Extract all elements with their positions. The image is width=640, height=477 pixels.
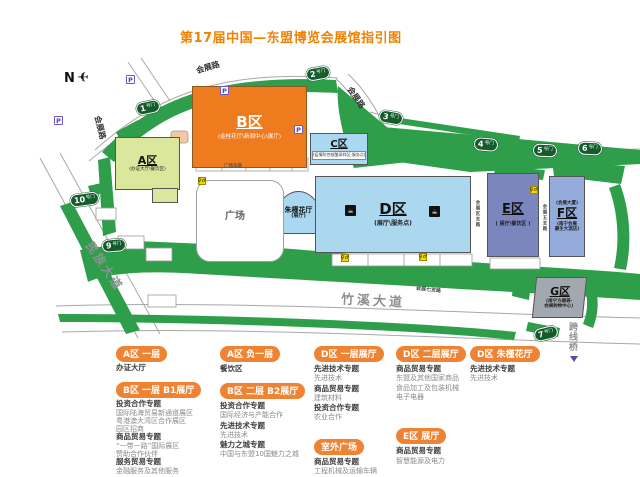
legend-block-header: B区 一层 B1展厅 bbox=[116, 382, 201, 398]
gate-number: 4 bbox=[478, 140, 484, 148]
zone-g-label: G区 bbox=[549, 286, 570, 299]
service-icon: ☕ bbox=[429, 206, 440, 217]
legend-item: 先进技术专题 bbox=[470, 364, 574, 374]
north-label: N bbox=[64, 71, 75, 86]
road-plaza-east: 广场东路 bbox=[224, 163, 242, 169]
gate-5-marker: 5号门 bbox=[533, 143, 557, 157]
plaza-label: 广场 bbox=[225, 207, 245, 222]
north-indicator: N✈ bbox=[64, 70, 89, 86]
legend-item: 金融服务及其他服务 bbox=[116, 467, 220, 475]
airplane-icon: ✈ bbox=[77, 70, 89, 86]
legend-item: 魅力之城专题 bbox=[220, 440, 324, 450]
plaza: 广场 bbox=[196, 180, 284, 262]
zone-c-label: C区 bbox=[330, 139, 347, 151]
service-icon: ☕ bbox=[345, 205, 356, 216]
gate-suffix: 号门 bbox=[588, 146, 597, 151]
legend-block-header: D区 一层展厅 bbox=[314, 346, 384, 362]
legend-block: E区 展厅商品贸易专题智慧能源及电力 bbox=[396, 424, 500, 466]
gate-4-marker: 4号门 bbox=[473, 137, 498, 152]
zone-a-label: A区 bbox=[138, 155, 158, 168]
zone-a-annex bbox=[152, 188, 178, 203]
gate-number: 3 bbox=[382, 112, 389, 121]
zone-d-sub: (展厅\服务点) bbox=[374, 221, 412, 228]
zone-b: B区 (金桂花厅\新闻中心\展厅) bbox=[192, 86, 307, 168]
gate-number: 5 bbox=[537, 146, 543, 154]
zone-d-label: D区 bbox=[379, 201, 406, 218]
legend-item: 先进技术 bbox=[220, 431, 324, 440]
zone-f-sub2: 豪生大酒店) bbox=[555, 227, 580, 232]
legend-block-header: B区 二层 B2展厅 bbox=[220, 383, 305, 399]
gate-9-marker: 9号门 bbox=[101, 238, 126, 253]
gate-number: 10 bbox=[74, 195, 86, 204]
zone-b-label: B区 bbox=[236, 114, 262, 131]
gate-suffix: 号门 bbox=[86, 196, 96, 202]
legend-column-5: D区 朱槿花厅先进技术专题先进技术 bbox=[470, 342, 574, 389]
zone-b-sub: (金桂花厅\新闻中心\展厅) bbox=[218, 134, 281, 140]
legend-block-header: A区 一层 bbox=[116, 346, 167, 362]
road-branch5: 会展五支路 bbox=[541, 204, 547, 232]
legend-item: 商品贸易专题 bbox=[396, 446, 500, 456]
zone-d: D区 (展厅\服务点) bbox=[315, 176, 471, 253]
legend-block-header: A区 负一层 bbox=[220, 346, 280, 362]
road-branch-d: 会展区支路 bbox=[474, 200, 480, 228]
parking-icon: P bbox=[126, 75, 135, 84]
parking-icon: P bbox=[220, 86, 229, 95]
legend-column-2: A区 负一层餐饮区B区 二层 B2展厅投资合作专题国际经济与产能合作先进技术专题… bbox=[220, 342, 324, 477]
zone-f: (会展大厦) F区 (南宁会展 豪生大酒店) bbox=[549, 176, 585, 257]
gate-suffix: 号门 bbox=[112, 243, 121, 248]
zone-a-sub: (办证大厅\餐饮区) bbox=[129, 167, 166, 172]
legend-item: 餐饮区 bbox=[220, 364, 324, 374]
legend-item: 中国与东盟10国魅力之城 bbox=[220, 450, 324, 459]
gate-6-marker: 6号门 bbox=[578, 141, 602, 155]
legend-block: D区 朱槿花厅先进技术专题先进技术 bbox=[470, 342, 574, 384]
zone-e-sub: ( 展厅\餐饮区 ) bbox=[496, 222, 531, 228]
legend-item: 国际经济与产能合作 bbox=[220, 411, 324, 420]
parking-icon: P bbox=[54, 116, 63, 125]
legend-block-header: D区 朱槿花厅 bbox=[470, 346, 540, 362]
toilet-icon: ♀♂ bbox=[419, 253, 427, 261]
legend-block: A区 一层办证大厅 bbox=[116, 342, 220, 373]
parking-icon: P bbox=[294, 125, 303, 134]
legend-item: 国际陆海贸易新通道展区 bbox=[116, 409, 220, 417]
legend-item: 先进技术专题 bbox=[220, 421, 324, 431]
zone-c: C区 (疫情防控核酸采样区·服务点) bbox=[310, 133, 368, 165]
legend-item: 投资合作专题 bbox=[220, 401, 324, 411]
zone-c-sub: (疫情防控核酸采样区·服务点) bbox=[312, 151, 366, 160]
legend: A区 一层办证大厅B区 一层 B1展厅投资合作专题国际陆海贸易新通道展区粤港澳大… bbox=[0, 342, 640, 477]
zone-f-label: F区 bbox=[557, 207, 577, 221]
legend-block: B区 一层 B1展厅投资合作专题国际陆海贸易新通道展区粤港澳大湾区合作展区园区招… bbox=[116, 378, 220, 475]
gate-suffix: 号门 bbox=[543, 148, 552, 153]
legend-block: A区 负一层餐饮区 bbox=[220, 342, 324, 374]
zone-e-label: E区 bbox=[502, 203, 524, 218]
gate-suffix: 号门 bbox=[146, 104, 156, 110]
legend-item: 投资合作专题 bbox=[116, 400, 220, 409]
gate-suffix: 号门 bbox=[389, 115, 399, 121]
legend-block-header: D区 二层展厅 bbox=[396, 346, 466, 362]
legend-item: 先进技术 bbox=[470, 374, 574, 383]
legend-block-header: E区 展厅 bbox=[396, 428, 446, 444]
toilet-icon: ♀♂ bbox=[530, 186, 538, 194]
legend-block-header: 室外广场 bbox=[314, 439, 364, 455]
gate-suffix: 号门 bbox=[484, 142, 493, 147]
legend-item: 服务贸易专题 bbox=[116, 458, 220, 467]
legend-item: 粤港澳大湾区合作展区 bbox=[116, 417, 220, 425]
toilet-icon: ♀♂ bbox=[341, 254, 349, 262]
zone-g: G区 (南宁方圆荟· 会展购物中心) bbox=[532, 277, 587, 318]
legend-item: 商品贸易专题 bbox=[116, 433, 220, 442]
gate-number: 9 bbox=[106, 242, 112, 250]
legend-item: 智慧能源及电力 bbox=[396, 457, 500, 466]
gate-suffix: 号门 bbox=[544, 329, 554, 336]
road-zhuxi-avenue: 竹溪大道 bbox=[341, 288, 406, 310]
gate-suffix: 号门 bbox=[316, 70, 326, 76]
legend-item: 办证大厅 bbox=[116, 364, 220, 373]
legend-item: “一带一路”国际展区 bbox=[116, 442, 220, 450]
zone-a: A区 (办证大厅\餐饮区) bbox=[115, 137, 180, 190]
legend-block: B区 二层 B2展厅投资合作专题国际经济与产能合作先进技术专题先进技术魅力之城专… bbox=[220, 379, 324, 460]
expo-guide-map: 第17届中国—东盟博览会展馆指引图 N✈ A区 (办证大厅\餐饮区) B区 (金… bbox=[0, 0, 640, 477]
zone-g-sub2: 会展购物中心) bbox=[544, 304, 574, 309]
toilet-icon: ♀♂ bbox=[198, 177, 206, 185]
zhujin-sub: (展厅) bbox=[291, 214, 306, 220]
legend-item: 电子电器 bbox=[396, 393, 500, 402]
legend-column-1: A区 一层办证大厅B区 一层 B1展厅投资合作专题国际陆海贸易新通道展区粤港澳大… bbox=[116, 342, 220, 477]
gate-number: 6 bbox=[582, 144, 588, 152]
page-title: 第17届中国—东盟博览会展馆指引图 bbox=[180, 27, 402, 46]
